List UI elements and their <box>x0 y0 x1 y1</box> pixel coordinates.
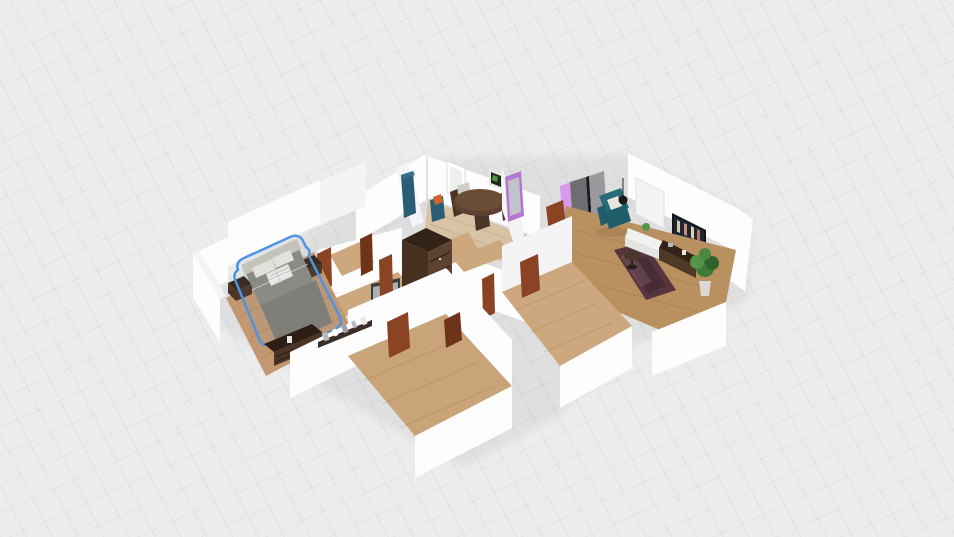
floorplan-viewport[interactable] <box>0 0 954 537</box>
open-door <box>360 233 373 276</box>
open-door <box>379 254 393 298</box>
sideboard-plant <box>642 223 650 231</box>
floorplan-canvas[interactable] <box>0 0 954 537</box>
purple-door-dining[interactable] <box>505 171 524 222</box>
